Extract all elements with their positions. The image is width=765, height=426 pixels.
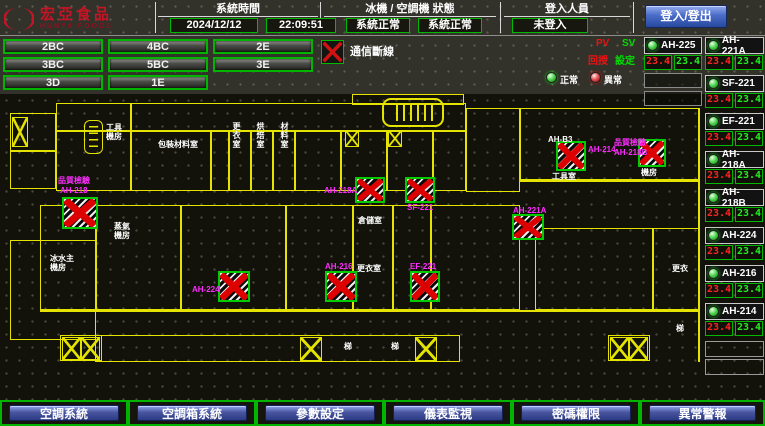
wall-segment — [228, 130, 230, 191]
pv-value: 23.4 — [705, 245, 733, 260]
wall-segment — [95, 335, 460, 362]
header-bottom-line — [0, 35, 765, 36]
room-label: 機房 — [641, 168, 657, 177]
nav-button-ahu-system[interactable]: 空調箱系統 — [137, 405, 247, 421]
device-label: AH-218 — [60, 186, 88, 195]
unit-status-led — [708, 306, 719, 317]
sv-value: 23.4 — [735, 131, 763, 146]
sv-value: 23.4 — [735, 283, 763, 298]
nav-button-ac-system[interactable]: 空調系統 — [9, 405, 119, 421]
floor-button-5bc[interactable]: 5BC — [108, 57, 208, 72]
wall-segment — [392, 205, 394, 310]
stairs-icon — [629, 337, 648, 360]
device-label: SF-221 — [407, 203, 433, 212]
system-time-label: 系統時間 — [158, 2, 318, 17]
unit-values: 23.4 23.4 — [705, 283, 764, 298]
unit-values: 23.4 23.4 — [705, 93, 764, 108]
wall-segment — [294, 130, 296, 191]
nav-button-parameter-settings[interactable]: 參數設定 — [265, 405, 375, 421]
floor-button-2bc[interactable]: 2BC — [3, 39, 103, 54]
wall-segment — [520, 108, 700, 180]
nav-cell: 空調系統 — [0, 400, 128, 426]
wall-segment — [272, 130, 274, 191]
ahu-status-value: 系統正常 — [418, 18, 482, 33]
nav-button-password-authority[interactable]: 密碼權限 — [521, 405, 631, 421]
unit-status-led — [708, 78, 719, 89]
empty-slot — [705, 341, 764, 357]
wall-segment — [10, 150, 56, 152]
floor-button-1e[interactable]: 1E — [108, 75, 208, 90]
unit-status-led — [708, 268, 719, 279]
comm-fault-label: 通信斷線 — [350, 45, 420, 59]
device-label: AH-221A — [513, 206, 546, 215]
room-label: 梯 — [676, 324, 684, 333]
wall-segment — [340, 130, 342, 191]
room-label: 工具室 — [552, 172, 576, 181]
device-label: EF-221 — [410, 262, 436, 271]
unit-ef-221[interactable]: EF-221 — [705, 113, 764, 130]
unit-name: AH-218A — [722, 149, 763, 171]
unit-name: EF-221 — [722, 116, 755, 127]
unit-ah-221a[interactable]: AH-221A — [705, 37, 764, 54]
empty-slot — [644, 91, 702, 106]
unit-status-led — [647, 40, 658, 51]
login-user-label: 登入人員 — [504, 2, 630, 17]
sv-value: 23.4 — [735, 93, 763, 108]
hmi-screen: { "header": { "logo_title": "宏亞食品", "log… — [0, 0, 765, 426]
rooftop-equipment-icon — [382, 98, 444, 127]
room-label: 烘焙室 — [256, 122, 265, 162]
wall-segment — [40, 310, 700, 312]
empty-slot — [644, 73, 702, 88]
unit-ah-214[interactable]: AH-214 — [705, 303, 764, 320]
room-label: 更衣室 — [357, 264, 381, 273]
unit-sf-221[interactable]: SF-221 — [705, 75, 764, 92]
ladder-icon — [84, 120, 103, 154]
system-clock-value: 22:09:51 — [266, 18, 336, 33]
wall-segment — [466, 108, 520, 192]
abnormal-led-label: 異常 — [604, 73, 622, 86]
wall-segment — [130, 103, 132, 191]
pv-name-label: 回授 — [588, 52, 608, 67]
unit-values: 23.4 23.4 — [644, 55, 702, 70]
room-label: 冰水主機房 — [50, 254, 78, 272]
ahu-unit-icon[interactable] — [556, 141, 586, 171]
unit-status-led — [708, 192, 719, 203]
stairs-icon — [610, 337, 629, 360]
unit-values: 23.4 23.4 — [705, 207, 764, 222]
pv-value: 23.4 — [705, 321, 733, 336]
ahu-unit-icon[interactable] — [325, 271, 357, 302]
ahu-unit-icon[interactable] — [218, 271, 250, 302]
sv-abbr-label: SV — [622, 38, 635, 49]
unit-values: 23.4 23.4 — [705, 55, 764, 70]
chiller-status-value: 系統正常 — [346, 18, 410, 33]
nav-cell: 空調箱系統 — [128, 400, 256, 426]
pv-value: 23.4 — [705, 283, 733, 298]
wall-segment — [250, 130, 252, 191]
device-label: AH-224 — [192, 285, 220, 294]
room-label: 更衣 — [672, 264, 688, 273]
unit-name: AH-221A — [722, 35, 763, 57]
sv-value: 23.4 — [674, 55, 702, 70]
unit-status-led — [708, 116, 719, 127]
unit-name: SF-221 — [722, 78, 755, 89]
unit-status-led — [708, 154, 719, 165]
unit-values: 23.4 23.4 — [705, 169, 764, 184]
login-logout-button[interactable]: 登入/登出 — [645, 5, 727, 28]
logo-text-block: 宏亞食品 HUNYA FOODS — [40, 7, 113, 30]
unit-values: 23.4 23.4 — [705, 321, 764, 336]
header-divider — [633, 2, 634, 33]
room-label: 更衣室 — [232, 122, 241, 162]
unit-values: 23.4 23.4 — [705, 245, 764, 260]
pv-value: 23.4 — [705, 55, 733, 70]
system-date-value: 2024/12/12 — [170, 18, 258, 33]
nav-cell: 密碼權限 — [512, 400, 640, 426]
stairs-icon — [12, 117, 28, 147]
device-label: 品質檢驗 — [58, 176, 90, 185]
stairs-icon — [415, 337, 437, 361]
wall-segment — [520, 180, 700, 182]
company-logo: 宏亞食品 HUNYA FOODS — [4, 2, 154, 35]
unit-ah-218a[interactable]: AH-218A — [705, 151, 764, 168]
wall-segment — [40, 205, 520, 310]
ahu-unit-icon[interactable] — [405, 177, 435, 203]
header-divider — [500, 2, 501, 33]
device-label: 品質檢驗 — [614, 138, 646, 147]
stairs-icon — [81, 337, 100, 360]
wall-segment — [210, 130, 212, 191]
unit-status-led — [708, 230, 719, 241]
room-label: 梯 — [344, 342, 352, 351]
pv-value: 23.4 — [705, 131, 733, 146]
unit-ah-224[interactable]: AH-224 — [705, 227, 764, 244]
unit-name: AH-214 — [722, 306, 756, 317]
floor-button-3e[interactable]: 3E — [213, 57, 313, 72]
ahu-unit-icon[interactable] — [62, 197, 98, 229]
floor-button-2e[interactable]: 2E — [213, 39, 313, 54]
device-label: AH-216 — [325, 262, 353, 271]
floor-button-3d[interactable]: 3D — [3, 75, 103, 90]
wall-segment — [180, 205, 182, 310]
unit-ah-216[interactable]: AH-216 — [705, 265, 764, 282]
empty-slot — [705, 359, 764, 375]
device-label: AH-214 — [588, 145, 616, 154]
unit-name: AH-225 — [661, 40, 695, 51]
normal-led-label: 正常 — [560, 73, 578, 86]
logo-subtitle: HUNYA FOODS — [40, 23, 113, 30]
stairs-icon — [345, 130, 359, 147]
floor-button-4bc[interactable]: 4BC — [108, 39, 208, 54]
pv-value: 23.4 — [705, 207, 733, 222]
nav-cell: 儀表監視 — [384, 400, 512, 426]
unit-values: 23.4 23.4 — [705, 131, 764, 146]
unit-name: AH-218B — [722, 187, 763, 209]
unit-status-led — [708, 40, 719, 51]
normal-led-icon — [546, 72, 557, 83]
wall-segment — [285, 205, 287, 310]
logo-title: 宏亞食品 — [40, 7, 113, 23]
pv-value: 23.4 — [705, 169, 733, 184]
room-label: 包裝材料室 — [158, 140, 198, 149]
room-label: 蒸氣機房 — [114, 222, 134, 240]
room-label: 工具機房 — [106, 123, 126, 141]
sv-value: 23.4 — [735, 55, 763, 70]
pv-value: 23.4 — [705, 93, 733, 108]
unit-ah-218b[interactable]: AH-218B — [705, 189, 764, 206]
device-label: AH-218A — [324, 186, 357, 195]
nav-button-meter-monitor[interactable]: 儀表監視 — [393, 405, 503, 421]
abnormal-led-icon — [590, 72, 601, 83]
pv-value: 23.4 — [644, 55, 672, 70]
pv-abbr-label: PV — [596, 38, 609, 49]
ahu-unit-icon[interactable] — [355, 177, 385, 203]
stairs-icon — [62, 337, 81, 360]
room-label: 材料室 — [280, 122, 289, 162]
header-divider — [155, 2, 156, 33]
nav-cell: 異常警報 — [640, 400, 765, 426]
room-label: 倉儲室 — [358, 216, 382, 225]
unit-ah-225[interactable]: AH-225 — [644, 37, 702, 54]
nav-cell: 參數設定 — [256, 400, 384, 426]
sv-value: 23.4 — [735, 207, 763, 222]
sv-value: 23.4 — [735, 169, 763, 184]
stairs-icon — [388, 130, 402, 147]
unit-name: AH-224 — [722, 230, 756, 241]
unit-name: AH-216 — [722, 268, 756, 279]
ahu-unit-icon[interactable] — [512, 214, 544, 240]
room-label: 梯 — [391, 342, 399, 351]
machine-status-label: 冰機 / 空調機 狀態 — [324, 2, 496, 17]
floor-button-3bc[interactable]: 3BC — [3, 57, 103, 72]
nav-button-alarm[interactable]: 異常警報 — [649, 405, 756, 421]
logo-mark-icon — [4, 5, 34, 33]
device-label: AH-218B — [614, 148, 647, 157]
wall-segment — [652, 228, 654, 310]
comm-fault-icon — [321, 40, 344, 64]
sv-name-label: 設定 — [615, 52, 635, 67]
wall-segment — [698, 108, 700, 362]
sv-value: 23.4 — [735, 245, 763, 260]
room-label: AH-B3 — [548, 135, 572, 144]
stairs-icon — [300, 337, 322, 361]
sv-value: 23.4 — [735, 321, 763, 336]
login-status-value: 未登入 — [512, 18, 588, 33]
ahu-unit-icon[interactable] — [410, 271, 440, 302]
